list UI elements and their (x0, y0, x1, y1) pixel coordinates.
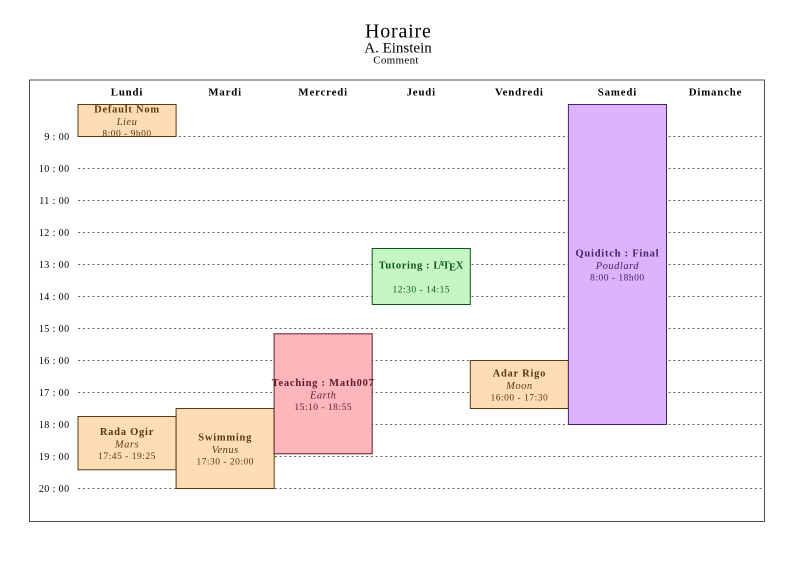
svg-text:Poudlard: Poudlard (595, 261, 640, 272)
svg-text:14 : 00: 14 : 00 (39, 292, 70, 303)
svg-text:Lundi: Lundi (111, 86, 143, 98)
svg-text:Rada Ogir: Rada Ogir (100, 427, 154, 438)
svg-text:16 : 00: 16 : 00 (39, 356, 70, 367)
svg-text:17:45 - 19:25: 17:45 - 19:25 (98, 452, 156, 462)
svg-text:Dimanche: Dimanche (689, 86, 743, 98)
svg-text:Earth: Earth (309, 390, 336, 401)
svg-text:Comment: Comment (373, 55, 419, 67)
svg-text:16:00 - 17:30: 16:00 - 17:30 (491, 394, 549, 404)
svg-text:18 : 00: 18 : 00 (39, 420, 70, 431)
svg-text:17:30 - 20:00: 17:30 - 20:00 (196, 458, 254, 468)
svg-text:Mercredi: Mercredi (298, 86, 348, 98)
svg-text:Lieu: Lieu (116, 117, 138, 128)
svg-text:Adar Rigo: Adar Rigo (493, 369, 547, 380)
svg-text:17 : 00: 17 : 00 (39, 388, 70, 399)
svg-text:Venus: Venus (212, 445, 239, 456)
svg-text:10 : 00: 10 : 00 (39, 164, 70, 175)
svg-text:15 : 00: 15 : 00 (39, 324, 70, 335)
svg-text:Moon: Moon (505, 381, 533, 392)
svg-text:8:00 - 9h00: 8:00 - 9h00 (102, 130, 151, 140)
svg-text:9 : 00: 9 : 00 (44, 132, 69, 143)
svg-text:Quiditch : Final: Quiditch : Final (576, 249, 660, 260)
svg-text:13 : 00: 13 : 00 (39, 260, 70, 271)
svg-text:Default Nom: Default Nom (94, 105, 160, 116)
svg-text:8:00 - 18h00: 8:00 - 18h00 (590, 274, 645, 284)
svg-text:Samedi: Samedi (598, 86, 637, 98)
svg-text:Mardi: Mardi (208, 86, 242, 98)
svg-text:Teaching : Math007: Teaching : Math007 (272, 378, 375, 389)
svg-text:Jeudi: Jeudi (407, 86, 436, 98)
svg-text:20 : 00: 20 : 00 (39, 484, 70, 495)
svg-text:Mars: Mars (114, 440, 139, 451)
svg-text:12 : 00: 12 : 00 (39, 228, 70, 239)
svg-text:19 : 00: 19 : 00 (39, 452, 70, 463)
svg-text:Swimming: Swimming (198, 433, 252, 444)
svg-text:15:10 - 18:55: 15:10 - 18:55 (294, 403, 352, 413)
svg-text:Horaire: Horaire (365, 21, 432, 43)
svg-text:11 : 00: 11 : 00 (39, 196, 69, 207)
svg-text:12:30 - 14:15: 12:30 - 14:15 (392, 286, 450, 296)
svg-text:Vendredi: Vendredi (495, 86, 544, 98)
